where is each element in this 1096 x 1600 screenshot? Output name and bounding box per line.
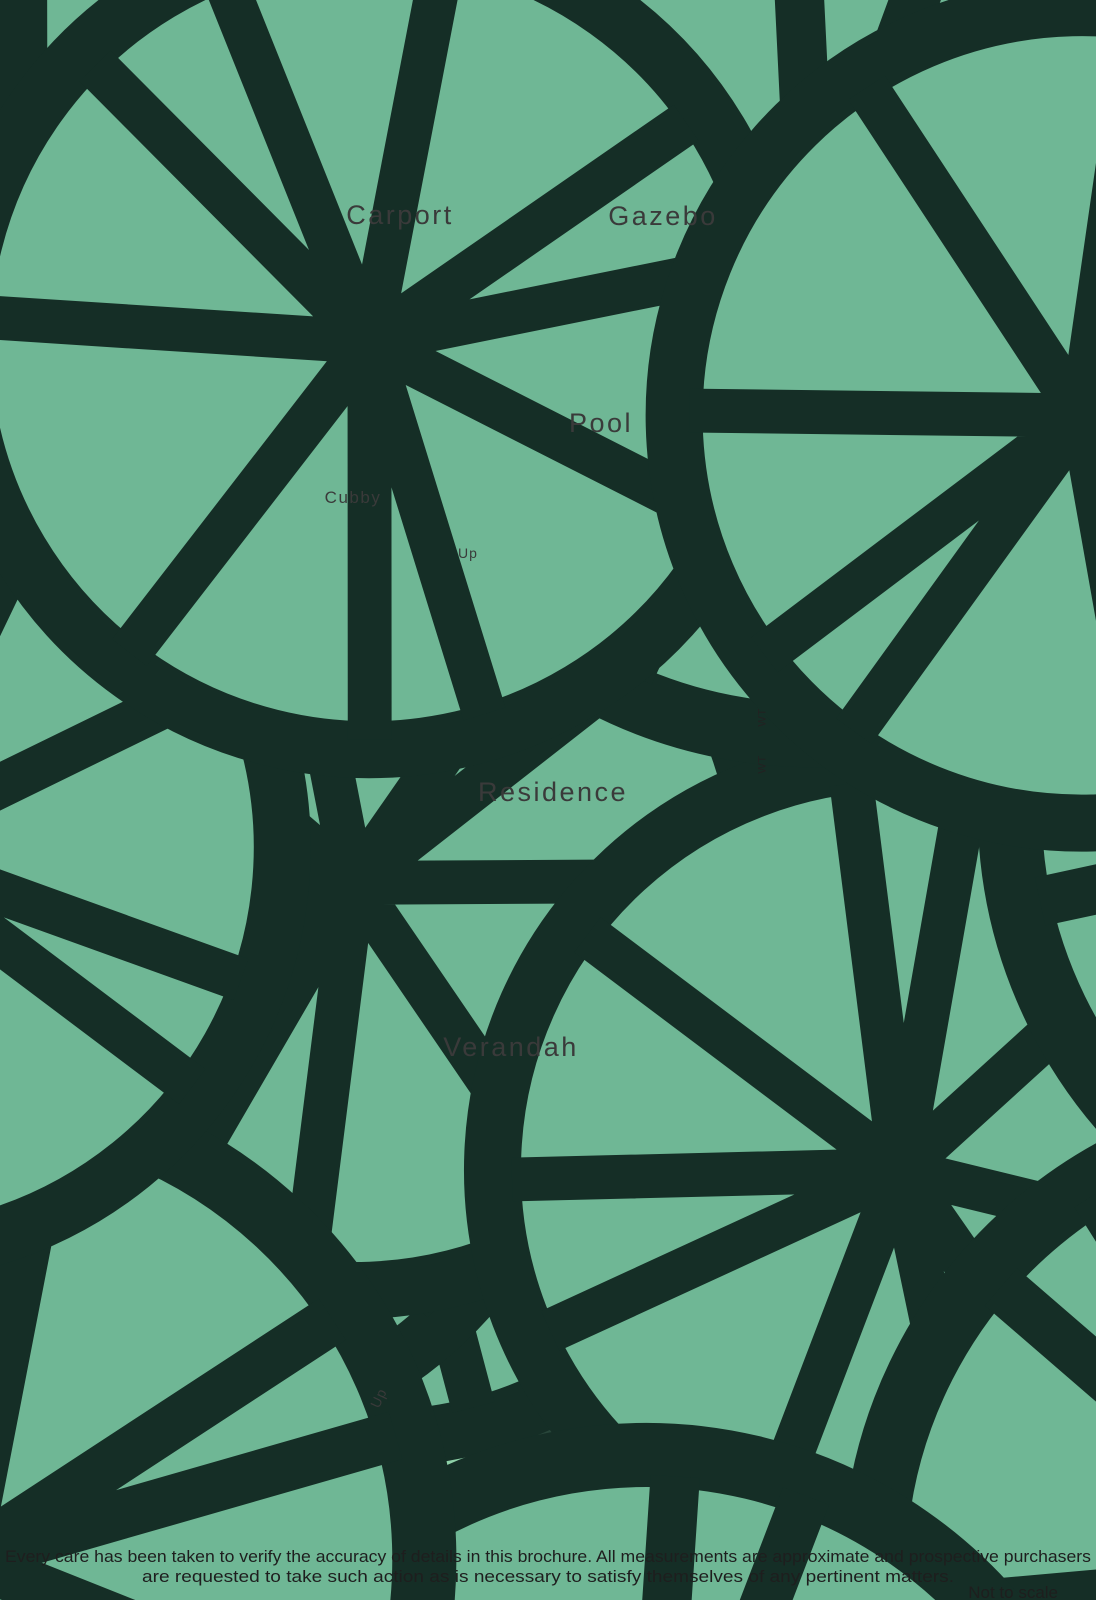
disclaimer-line-1: Every care has been taken to verify the … (5, 1547, 1091, 1566)
up-stairs-label: Up (458, 545, 478, 561)
pool-label: Pool (569, 408, 633, 438)
floor-plan-svg: 60 Fordham Avenue, Camberwell (0, 0, 1096, 1600)
scale-note: Not to scale (968, 1583, 1058, 1600)
carport-label: Carport (346, 200, 454, 230)
disclaimer-line-2: are requested to take such action as is … (142, 1567, 954, 1586)
verandah-label: Verandah (443, 1032, 579, 1062)
residence-label: Residence (478, 777, 628, 807)
brochure-page: 60 Fordham Avenue, Camberwell (0, 0, 1096, 1600)
gazebo-label: Gazebo (608, 201, 718, 231)
cubby-label: Cubby (325, 488, 382, 507)
water-tank-label-2: WT (757, 755, 769, 773)
water-tank-label-1: WT (757, 708, 769, 726)
site-plan: Carport Gazebo Pool Cubby Up Residence V… (0, 0, 1096, 1600)
